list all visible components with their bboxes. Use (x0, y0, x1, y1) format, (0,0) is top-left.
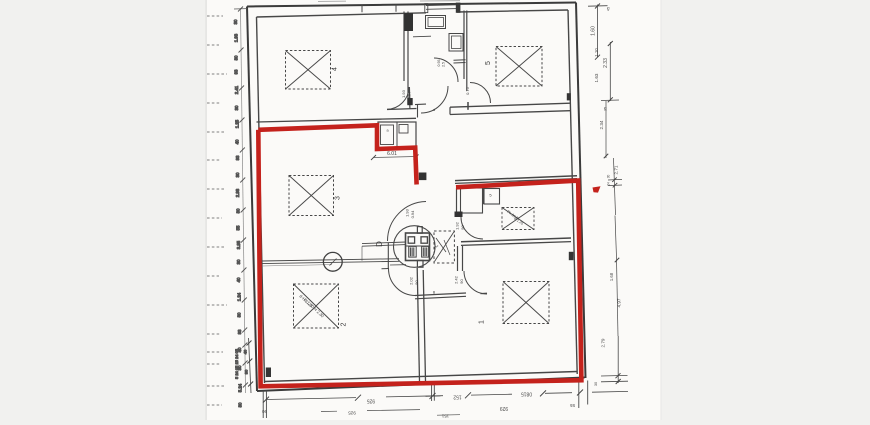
svg-text:40: 40 (236, 277, 241, 282)
svg-text:1.25: 1.25 (234, 119, 239, 128)
svg-text:2.5: 2.5 (442, 62, 446, 67)
svg-text:6.01: 6.01 (387, 151, 397, 157)
svg-text:30: 30 (237, 312, 242, 317)
svg-text:30: 30 (234, 55, 239, 60)
svg-text:90: 90 (414, 280, 419, 285)
svg-text:4.97: 4.97 (617, 298, 622, 307)
svg-text:929: 929 (500, 405, 509, 411)
svg-text:1.68: 1.68 (609, 272, 614, 281)
svg-text:93: 93 (234, 69, 239, 74)
svg-text:2.34: 2.34 (599, 120, 604, 129)
svg-text:55: 55 (236, 225, 241, 230)
svg-text:93: 93 (235, 155, 240, 160)
svg-text:2.41: 2.41 (234, 85, 239, 94)
svg-text:30: 30 (235, 172, 240, 177)
svg-text:0.93: 0.93 (437, 60, 441, 67)
svg-text:40: 40 (235, 139, 240, 144)
svg-text:0.94: 0.94 (407, 91, 412, 100)
svg-text:30: 30 (607, 175, 611, 179)
svg-text:2.42: 2.42 (454, 275, 459, 284)
svg-text:30: 30 (243, 369, 248, 374)
svg-text:5: 5 (485, 61, 492, 65)
svg-text:30: 30 (238, 402, 243, 407)
svg-text:5 24 05 15 24 05: 5 24 05 15 24 05 (234, 348, 239, 379)
svg-text:925: 925 (367, 398, 376, 404)
svg-text:1.93: 1.93 (401, 89, 406, 98)
svg-text:4: 4 (332, 67, 339, 71)
svg-text:55: 55 (570, 403, 575, 408)
svg-text:3: 3 (335, 196, 342, 200)
svg-text:1.24: 1.24 (236, 292, 241, 301)
svg-text:2.02: 2.02 (409, 276, 414, 285)
svg-text:1.60: 1.60 (591, 26, 597, 36)
svg-text:925: 925 (348, 411, 356, 416)
svg-text:24: 24 (607, 182, 611, 186)
svg-text:30: 30 (233, 19, 238, 24)
svg-text:3.95: 3.95 (236, 240, 241, 249)
svg-text:90: 90 (262, 409, 267, 414)
svg-text:1.92: 1.92 (455, 221, 460, 230)
svg-text:2.33: 2.33 (603, 58, 609, 68)
svg-text:90: 90 (460, 225, 465, 230)
svg-text:1: 1 (479, 320, 486, 324)
svg-text:0.75: 0.75 (465, 86, 470, 95)
svg-text:2.79: 2.79 (601, 338, 606, 347)
svg-text:2.98: 2.98 (235, 188, 240, 197)
svg-text:1.93: 1.93 (233, 33, 238, 42)
svg-text:1.10: 1.10 (594, 48, 599, 57)
svg-text:0.94: 0.94 (410, 210, 415, 219)
svg-text:D: D (375, 241, 384, 247)
svg-text:90: 90 (459, 279, 464, 284)
svg-text:2: 2 (341, 322, 348, 326)
svg-text:30: 30 (236, 259, 241, 264)
svg-text:5.24: 5.24 (237, 383, 242, 392)
svg-text:45: 45 (607, 7, 611, 11)
svg-text:30: 30 (594, 382, 598, 386)
svg-text:152: 152 (453, 394, 462, 400)
svg-text:35: 35 (604, 107, 608, 111)
svg-text:93: 93 (237, 329, 242, 334)
svg-text:151: 151 (441, 414, 449, 419)
svg-text:1.63: 1.63 (594, 73, 599, 82)
svg-text:d: d (433, 108, 435, 112)
svg-text:2.71: 2.71 (614, 165, 619, 174)
svg-text:0815: 0815 (521, 391, 532, 397)
svg-text:30: 30 (235, 208, 240, 213)
svg-text:1.93: 1.93 (405, 208, 410, 217)
svg-text:30: 30 (234, 105, 239, 110)
svg-text:40: 40 (243, 349, 248, 354)
